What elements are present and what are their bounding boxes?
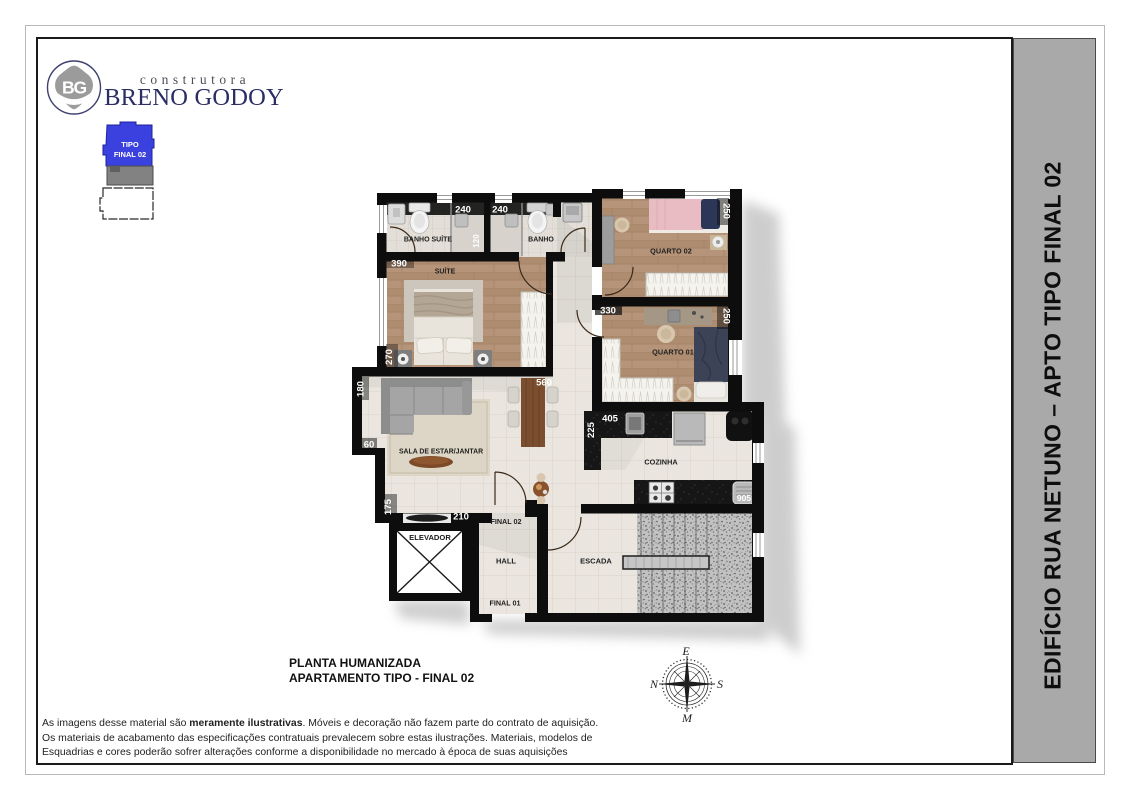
- svg-text:S: S: [717, 677, 723, 691]
- svg-text:QUARTO 02: QUARTO 02: [650, 247, 692, 256]
- svg-text:SALA DE ESTAR/JANTAR: SALA DE ESTAR/JANTAR: [399, 449, 483, 456]
- svg-text:560: 560: [536, 378, 552, 389]
- svg-text:ESCADA: ESCADA: [580, 557, 612, 566]
- svg-text:60: 60: [364, 440, 375, 451]
- svg-text:BANHO: BANHO: [528, 237, 554, 244]
- svg-text:N: N: [649, 677, 659, 691]
- svg-text:FINAL 02: FINAL 02: [490, 517, 521, 526]
- svg-text:240: 240: [455, 205, 471, 216]
- svg-text:250: 250: [721, 203, 732, 219]
- svg-text:240: 240: [492, 205, 508, 216]
- svg-text:405: 405: [602, 414, 619, 425]
- svg-text:COZINHA: COZINHA: [644, 458, 678, 467]
- svg-text:270: 270: [384, 349, 395, 365]
- svg-text:390: 390: [391, 259, 407, 270]
- svg-text:180: 180: [356, 381, 367, 397]
- svg-text:120: 120: [472, 234, 481, 248]
- svg-text:175: 175: [383, 498, 394, 515]
- svg-text:HALL: HALL: [496, 557, 516, 566]
- svg-text:BANHO SUÍTE: BANHO SUÍTE: [404, 235, 453, 244]
- svg-text:ELEVADOR: ELEVADOR: [409, 533, 451, 542]
- svg-text:QUARTO 01: QUARTO 01: [652, 348, 694, 357]
- svg-text:250: 250: [721, 308, 732, 324]
- svg-text:905: 905: [737, 493, 751, 503]
- svg-text:330: 330: [600, 306, 616, 317]
- svg-text:FINAL 01: FINAL 01: [489, 599, 520, 608]
- svg-text:SUÍTE: SUÍTE: [435, 267, 456, 276]
- svg-text:225: 225: [586, 421, 597, 438]
- svg-text:210: 210: [453, 512, 469, 523]
- svg-text:M: M: [681, 711, 693, 725]
- svg-text:E: E: [681, 644, 690, 658]
